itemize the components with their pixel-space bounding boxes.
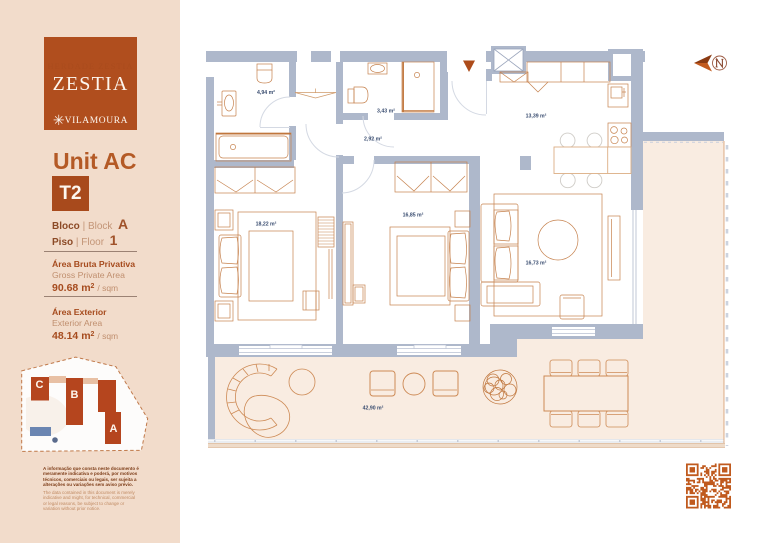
svg-text:4,94 m²: 4,94 m² [257,90,275,96]
svg-text:42,90 m²: 42,90 m² [363,406,384,412]
svg-text:16,85 m²: 16,85 m² [403,213,424,219]
svg-text:13,39 m²: 13,39 m² [526,114,547,120]
svg-text:2,92 m²: 2,92 m² [364,137,382,143]
svg-text:16,73 m²: 16,73 m² [526,261,547,267]
svg-text:B: B [71,389,79,401]
svg-text:A: A [110,423,118,435]
svg-text:C: C [36,379,44,391]
svg-text:3,43 m²: 3,43 m² [377,109,395,115]
svg-text:18,22 m²: 18,22 m² [256,222,277,228]
